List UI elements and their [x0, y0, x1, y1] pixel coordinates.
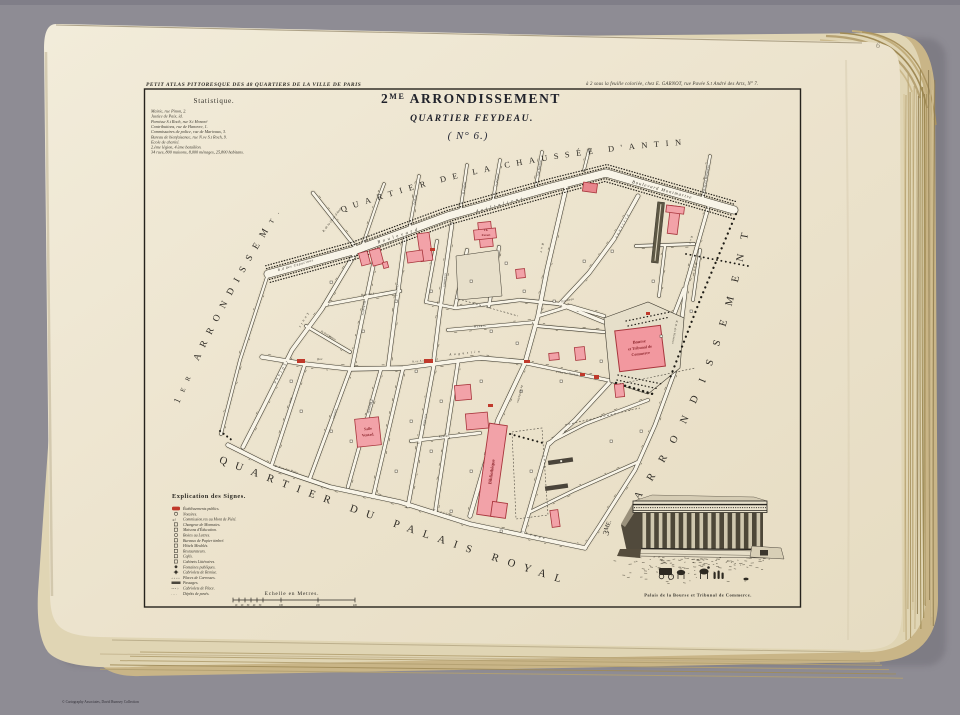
svg-text:Passages.: Passages.: [182, 581, 198, 585]
svg-text:Th.: Th.: [484, 228, 489, 232]
svg-text:2ME ARRONDISSEMENT: 2ME ARRONDISSEMENT: [381, 91, 561, 106]
svg-text:Cafés.: Cafés.: [183, 555, 193, 559]
svg-text:Explication des Signes.: Explication des Signes.: [172, 493, 246, 500]
svg-text:QUARTIER FEYDEAU.: QUARTIER FEYDEAU.: [410, 114, 534, 124]
svg-text:( N° 6.): ( N° 6.): [448, 130, 489, 142]
svg-text:Commission.res au Mont de Piét: Commission.res au Mont de Piété.: [183, 518, 236, 522]
svg-text:Cabriolets de Remise.: Cabriolets de Remise.: [183, 571, 217, 575]
svg-text:g.l: g.l: [173, 518, 177, 522]
svg-text:Maisons d'Éducation.: Maisons d'Éducation.: [182, 527, 217, 532]
svg-text:PETIT ATLAS PITTORESQUE DES 48: PETIT ATLAS PITTORESQUE DES 48 QUARTIERS…: [146, 82, 361, 88]
svg-text:Favart: Favart: [482, 233, 491, 237]
svg-text:Places de Carrosses.: Places de Carrosses.: [182, 576, 216, 580]
svg-text:« » « »: « » « »: [172, 576, 181, 580]
svg-text:Salle: Salle: [364, 427, 372, 432]
svg-text:Dépôts de pavés.: Dépôts de pavés.: [182, 592, 209, 596]
svg-text:Notaires.: Notaires.: [182, 512, 197, 516]
svg-text:Rue: Rue: [316, 357, 323, 361]
svg-text:Palais de la Bourse et Tribuna: Palais de la Bourse et Tribunal de Comme…: [644, 593, 752, 598]
svg-text:Restaurateurs.: Restaurateurs.: [182, 549, 206, 553]
svg-text:Cabinets Littéraires.: Cabinets Littéraires.: [183, 560, 215, 564]
svg-text:Boites au Lettres.: Boites au Lettres.: [183, 534, 210, 538]
svg-text:Echelle en Metres.: Echelle en Metres.: [265, 591, 320, 597]
svg-text:Hôtels Meublés.: Hôtels Meublés.: [182, 544, 208, 548]
svg-text:Statistique.: Statistique.: [194, 97, 235, 105]
svg-text:Fontaines publiques.: Fontaines publiques.: [182, 565, 216, 569]
svg-text:à 2 sous la feuille coloriée,: à 2 sous la feuille coloriée, chez E. GA…: [586, 82, 758, 87]
svg-text:Établissements publics.: Établissements publics.: [182, 506, 220, 511]
svg-text:6: 6: [876, 41, 880, 50]
svg-text:Bureaux de Papier timbré.: Bureaux de Papier timbré.: [183, 539, 224, 543]
svg-text:Changeur de Monnaies.: Changeur de Monnaies.: [183, 523, 221, 527]
svg-text:• • • ○: • • • ○: [172, 587, 179, 591]
svg-text:Cabriolets de Place.: Cabriolets de Place.: [183, 587, 215, 591]
svg-text:. . . .: . . . .: [172, 592, 178, 596]
